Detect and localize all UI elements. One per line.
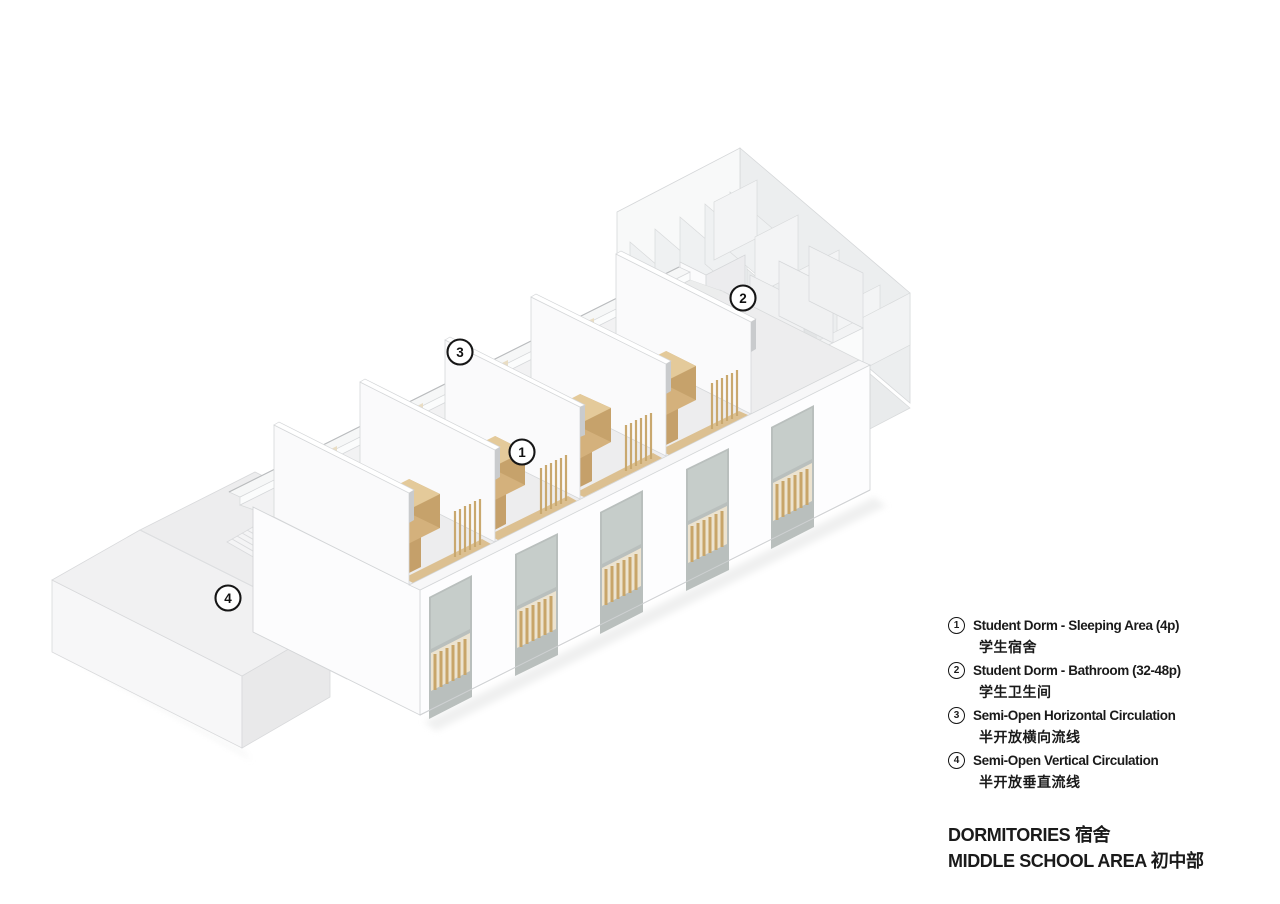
legend-label-en: Semi-Open Horizontal Circulation bbox=[973, 708, 1175, 723]
window-3 bbox=[600, 490, 643, 634]
title-line-1: DORMITORIES 宿舍 bbox=[948, 822, 1204, 848]
architectural-diagram-page: 1 2 3 4 1 Student Dorm - Sleeping Area (… bbox=[0, 0, 1280, 904]
legend-num-badge: 2 bbox=[948, 662, 965, 679]
svg-text:1: 1 bbox=[518, 445, 526, 460]
window-5 bbox=[771, 405, 814, 549]
legend-label-zh: 学生卫生间 bbox=[979, 679, 1228, 706]
legend-item-1: 1 Student Dorm - Sleeping Area (4p) 学生宿舍 bbox=[948, 617, 1228, 661]
legend-label-zh: 半开放垂直流线 bbox=[979, 769, 1228, 796]
legend-item-3: 3 Semi-Open Horizontal Circulation 半开放横向… bbox=[948, 707, 1228, 751]
legend: 1 Student Dorm - Sleeping Area (4p) 学生宿舍… bbox=[948, 617, 1228, 797]
legend-item-2: 2 Student Dorm - Bathroom (32-48p) 学生卫生间 bbox=[948, 662, 1228, 706]
legend-label-en: Student Dorm - Bathroom (32-48p) bbox=[973, 663, 1181, 678]
marker-1: 1 bbox=[510, 440, 535, 465]
marker-2: 2 bbox=[731, 286, 756, 311]
legend-label-en: Student Dorm - Sleeping Area (4p) bbox=[973, 618, 1179, 633]
title-line-2: MIDDLE SCHOOL AREA 初中部 bbox=[948, 848, 1204, 874]
drawing-title: DORMITORIES 宿舍 MIDDLE SCHOOL AREA 初中部 bbox=[948, 822, 1204, 874]
legend-label-zh: 半开放横向流线 bbox=[979, 724, 1228, 751]
legend-num-badge: 4 bbox=[948, 752, 965, 769]
svg-text:3: 3 bbox=[456, 345, 464, 360]
svg-text:2: 2 bbox=[739, 291, 747, 306]
marker-3: 3 bbox=[448, 340, 473, 365]
window-4 bbox=[686, 448, 729, 591]
legend-label-en: Semi-Open Vertical Circulation bbox=[973, 753, 1158, 768]
legend-num-badge: 3 bbox=[948, 707, 965, 724]
legend-label-zh: 学生宿舍 bbox=[979, 634, 1228, 661]
legend-item-4: 4 Semi-Open Vertical Circulation 半开放垂直流线 bbox=[948, 752, 1228, 796]
legend-num-badge: 1 bbox=[948, 617, 965, 634]
window-2 bbox=[515, 533, 558, 676]
marker-4: 4 bbox=[216, 586, 241, 611]
window-1 bbox=[429, 575, 472, 719]
svg-text:4: 4 bbox=[224, 591, 232, 606]
